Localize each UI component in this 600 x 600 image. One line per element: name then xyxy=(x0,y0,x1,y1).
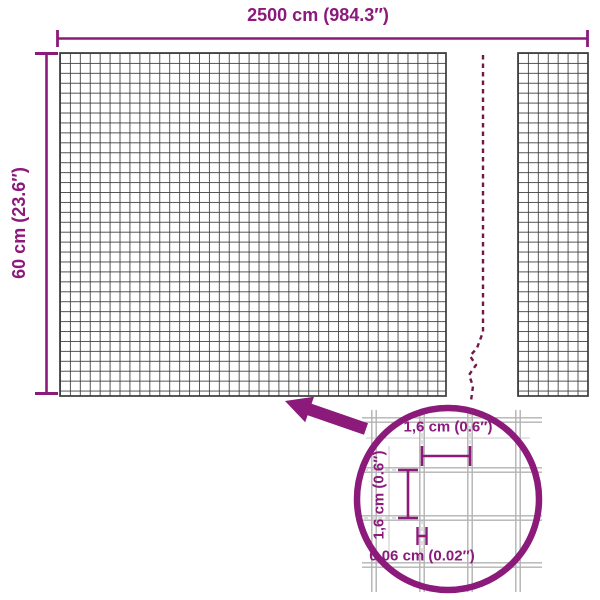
height-dimension-label: 60 cm (23.6″) xyxy=(10,167,28,279)
mesh-opening-width-label: 1,6 cm (0.6″) xyxy=(404,420,493,435)
mesh-panel-left xyxy=(60,53,446,396)
wire-thickness-label: 0,06 cm (0.02″) xyxy=(369,549,475,564)
detail-opening-height-dimension xyxy=(398,470,418,518)
dimension-diagram: 2500 cm (984.3″) 60 cm (23.6″) 1,6 cm (0… xyxy=(0,0,600,600)
width-dimension-label: 2500 cm (984.3″) xyxy=(247,6,389,24)
width-dimension-line xyxy=(57,30,588,47)
mesh-panel-right xyxy=(518,53,588,396)
break-line xyxy=(469,55,483,401)
detail-opening-width-dimension xyxy=(422,446,470,466)
zoom-arrow-icon xyxy=(285,397,368,435)
diagram-graphics xyxy=(0,0,600,600)
height-dimension-line xyxy=(35,53,58,394)
mesh-opening-height-label: 1,6 cm (0.6″) xyxy=(372,451,387,540)
